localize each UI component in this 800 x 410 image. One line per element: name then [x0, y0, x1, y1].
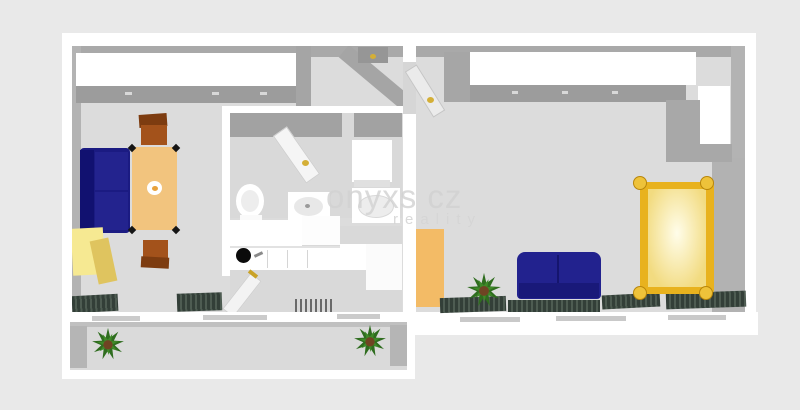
watermark-logo: onyxs cz	[326, 180, 462, 213]
chair-top-seat	[141, 125, 167, 145]
bedroom-wall-column	[666, 100, 700, 162]
bedroom-wardrobe-handle-1	[512, 91, 518, 94]
bedroom-plant	[466, 272, 502, 308]
outer-wall-left	[62, 33, 72, 323]
livingroom-wardrobe-top	[76, 53, 296, 86]
kitchen-fridge	[366, 244, 402, 290]
bathroom-wall-left	[222, 106, 230, 276]
hall-wall-stub	[296, 46, 311, 108]
balcony-left-inner-wall	[70, 326, 87, 368]
livingroom-radiator-mid	[177, 292, 223, 312]
kitchen-wall-cabinet-b	[302, 216, 340, 245]
bedroom-sofa-base	[519, 283, 599, 298]
bedroom-wardrobe-handle-2	[562, 91, 568, 94]
window-frame-right-3	[668, 315, 726, 320]
hall-entry-door-handle	[370, 54, 376, 59]
watermark-subtitle: reality	[393, 212, 482, 227]
balcony-outer-wall-right	[407, 322, 415, 378]
window-frame-right-2	[556, 316, 626, 321]
floorplan-image: onyxs cz reality	[0, 0, 800, 410]
balcony-outer-wall-bottom	[62, 370, 415, 379]
window-frame-left-1	[92, 316, 140, 321]
sink-drain	[305, 204, 310, 208]
sofa-cushion-bottom	[95, 192, 128, 230]
bedroom-wardrobe-handle-3	[612, 91, 618, 94]
window-frame-left-2	[203, 315, 267, 320]
bed-post-top-right	[700, 176, 714, 190]
kitchen-cabinet-divider-1	[267, 250, 268, 268]
kitchen-wall-cabinet-a	[230, 220, 302, 246]
bedroom-radiator-2	[508, 300, 600, 312]
window-frame-left-3	[337, 314, 380, 319]
bedroom-right-wall-face-upper	[731, 46, 745, 160]
bathroom-wall-top	[222, 106, 408, 113]
bedroom-wardrobe-side	[444, 52, 470, 102]
bed-post-bottom-left	[633, 286, 647, 300]
kitchen-cabinet-divider-2	[287, 250, 288, 268]
bedroom-wall-under-cabinet	[698, 144, 732, 162]
bed-post-bottom-right	[699, 286, 713, 300]
toilet-seat	[241, 190, 259, 212]
kitchen-hob	[236, 248, 251, 263]
bedroom-wardrobe-orange	[416, 229, 444, 307]
balcony-right-inner-wall	[390, 325, 407, 366]
bathroom-door-handle	[302, 160, 309, 166]
bedroom-wardrobe-front	[470, 85, 686, 102]
balcony-plant-left	[91, 327, 125, 361]
kitchen-cabinet-divider-3	[307, 250, 308, 268]
window-frame-right-1	[460, 317, 520, 322]
chair-bottom-backrest	[141, 256, 170, 268]
balcony-plant-right	[353, 324, 387, 358]
bed-post-top-left	[633, 176, 647, 190]
bed-mattress	[648, 189, 706, 287]
bedroom-entry-door-handle	[427, 97, 434, 103]
unit-divider-wall-upper	[403, 33, 416, 62]
bedroom-wardrobe-top	[470, 52, 696, 85]
wardrobe-handle-2	[212, 92, 219, 95]
wardrobe-handle-3	[260, 92, 267, 95]
bathroom-top-inner-face-b	[354, 113, 402, 137]
wardrobe-handle-1	[125, 92, 132, 95]
bedroom-side-cabinet	[698, 86, 730, 144]
kitchen-radiator	[292, 299, 332, 312]
sofa-cushion-top	[95, 152, 128, 190]
washing-machine	[352, 140, 392, 182]
outer-wall-right	[745, 33, 756, 333]
table-centerpiece-flower	[152, 186, 158, 191]
sofa-backrest	[80, 150, 94, 231]
livingroom-radiator-left	[72, 294, 119, 313]
